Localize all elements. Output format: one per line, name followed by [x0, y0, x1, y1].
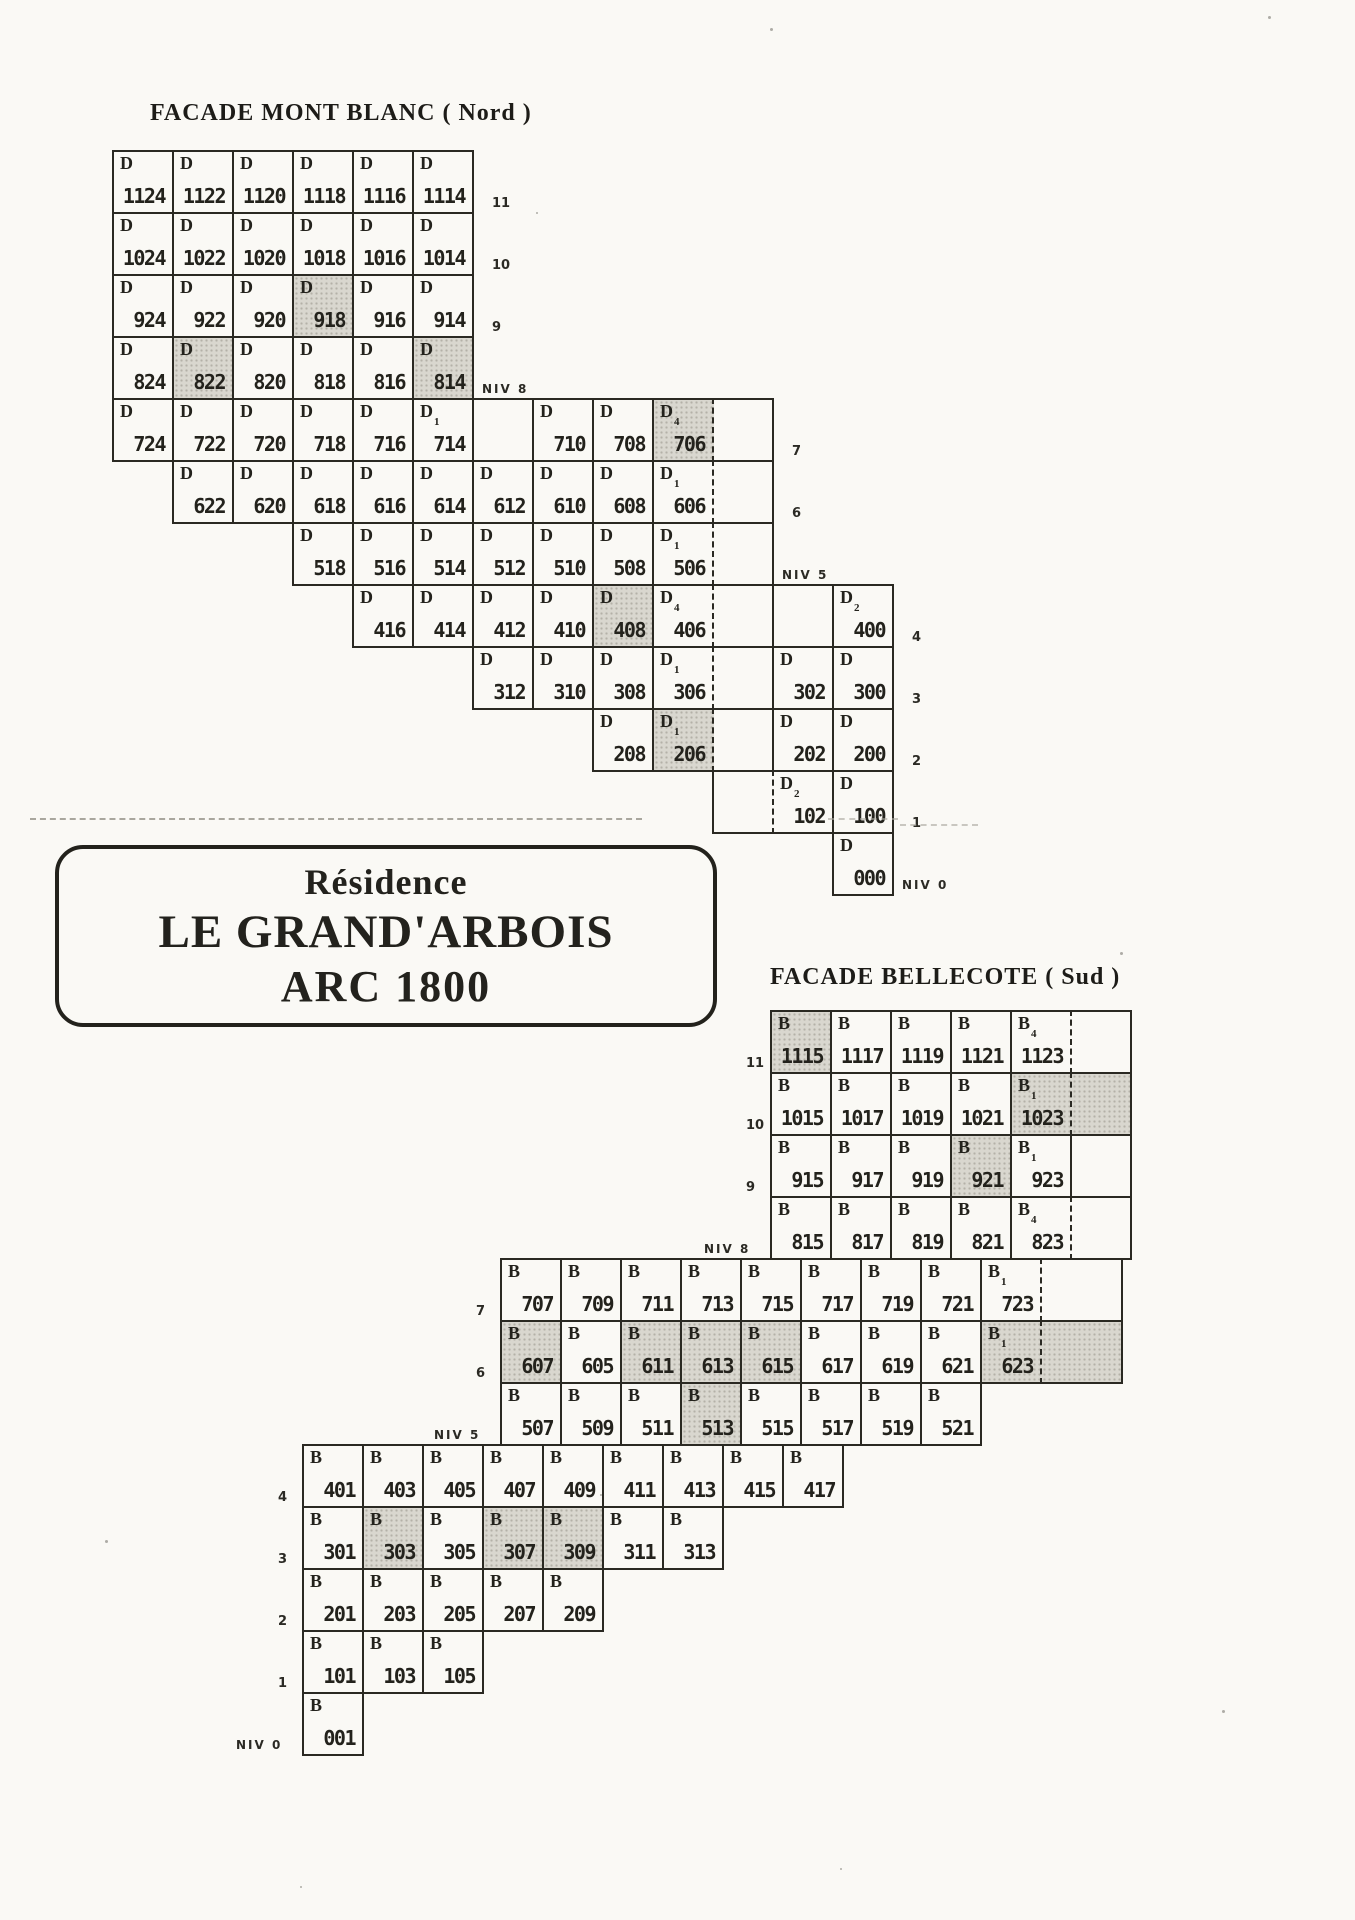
unit-cell-917: B917	[830, 1134, 892, 1198]
unit-letter: B	[778, 1199, 790, 1220]
unit-number: 1021	[961, 1106, 1003, 1130]
unit-number: 1015	[781, 1106, 823, 1130]
residence-resort: ARC 1800	[281, 961, 491, 1012]
unit-cell-413: B413	[662, 1444, 724, 1508]
level-marker-south-3: 3	[278, 1552, 287, 1567]
empty-cell	[1070, 1134, 1132, 1198]
unit-letter: B	[508, 1323, 520, 1344]
unit-number: 1121	[961, 1044, 1003, 1068]
unit-cell-1021: B1021	[950, 1072, 1012, 1136]
unit-letter: B1	[988, 1323, 1006, 1347]
unit-number: 715	[761, 1292, 793, 1316]
unit-cell-611: B611	[620, 1320, 682, 1384]
unit-cell-919: B919	[890, 1134, 952, 1198]
facade-title-south: FACADE BELLECOTE ( Sud )	[770, 964, 1120, 991]
unit-number: 101	[323, 1664, 355, 1688]
residence-name: Résidence	[305, 861, 468, 903]
scan-speck	[600, 1494, 602, 1496]
unit-cell-201: B201	[302, 1568, 364, 1632]
empty-cell	[1040, 1320, 1123, 1384]
unit-letter: B	[748, 1385, 760, 1406]
unit-number: 511	[641, 1416, 673, 1440]
unit-letter: B	[628, 1385, 640, 1406]
unit-number: 817	[851, 1230, 883, 1254]
unit-letter: B1	[1018, 1075, 1036, 1099]
scan-speck	[1268, 16, 1271, 19]
unit-cell-205: B205	[422, 1568, 484, 1632]
unit-number: 513	[701, 1416, 733, 1440]
level-marker-south-1: 1	[278, 1676, 287, 1691]
unit-letter: B	[628, 1261, 640, 1282]
unit-number: 209	[563, 1602, 595, 1626]
unit-letter: B	[790, 1447, 802, 1468]
scan-speck	[840, 1868, 842, 1870]
unit-letter: B	[808, 1323, 820, 1344]
unit-number: 509	[581, 1416, 613, 1440]
unit-number: 313	[683, 1540, 715, 1564]
unit-cell-707: B707	[500, 1258, 562, 1322]
unit-cell-1019: B1019	[890, 1072, 952, 1136]
scan-fold-line	[30, 818, 642, 820]
unit-cell-715: B715	[740, 1258, 802, 1322]
unit-number: 915	[791, 1168, 823, 1192]
unit-number: 619	[881, 1354, 913, 1378]
unit-letter: B	[898, 1013, 910, 1034]
unit-letter: B	[898, 1199, 910, 1220]
unit-letter: B	[808, 1385, 820, 1406]
unit-cell-621: B621	[920, 1320, 982, 1384]
unit-letter: B	[868, 1385, 880, 1406]
unit-cell-509: B509	[560, 1382, 622, 1446]
unit-number: 821	[971, 1230, 1003, 1254]
unit-number: 515	[761, 1416, 793, 1440]
unit-cell-507: B507	[500, 1382, 562, 1446]
unit-number: 719	[881, 1292, 913, 1316]
unit-cell-821: B821	[950, 1196, 1012, 1260]
unit-letter: B	[310, 1695, 322, 1716]
unit-cell-411: B411	[602, 1444, 664, 1508]
unit-cell-303: B303	[362, 1506, 424, 1570]
unit-letter: B	[778, 1075, 790, 1096]
unit-cell-313: B313	[662, 1506, 724, 1570]
unit-letter: B	[370, 1447, 382, 1468]
unit-cell-401: B401	[302, 1444, 364, 1508]
unit-number: 1017	[841, 1106, 883, 1130]
unit-letter: B	[688, 1385, 700, 1406]
level-marker-south-2: 2	[278, 1614, 287, 1629]
unit-number: 815	[791, 1230, 823, 1254]
unit-cell-405: B405	[422, 1444, 484, 1508]
unit-letter: B	[688, 1323, 700, 1344]
unit-cell-517: B517	[800, 1382, 862, 1446]
unit-number: 1023	[1021, 1106, 1063, 1130]
unit-number: 309	[563, 1540, 595, 1564]
unit-letter: B	[370, 1509, 382, 1530]
unit-letter: B	[430, 1509, 442, 1530]
unit-number: 305	[443, 1540, 475, 1564]
unit-letter: B	[610, 1509, 622, 1530]
unit-letter: B	[490, 1509, 502, 1530]
unit-number: 721	[941, 1292, 973, 1316]
unit-cell-823: B4823	[1010, 1196, 1072, 1260]
unit-number: 617	[821, 1354, 853, 1378]
unit-letter: B	[310, 1447, 322, 1468]
unit-cell-623: B1623	[980, 1320, 1042, 1384]
unit-number: 415	[743, 1478, 775, 1502]
unit-number: 403	[383, 1478, 415, 1502]
unit-number: 1019	[901, 1106, 943, 1130]
empty-cell	[1070, 1196, 1132, 1260]
unit-cell-815: B815	[770, 1196, 832, 1260]
unit-number: 917	[851, 1168, 883, 1192]
unit-number: 407	[503, 1478, 535, 1502]
unit-number: 201	[323, 1602, 355, 1626]
unit-letter: B	[928, 1323, 940, 1344]
level-marker-south-8: NIV 8	[704, 1242, 750, 1256]
unit-letter: B	[370, 1571, 382, 1592]
unit-cell-1115: B1115	[770, 1010, 832, 1074]
unit-number: 203	[383, 1602, 415, 1626]
level-marker-south-0: NIV 0	[236, 1738, 282, 1752]
unit-number: 517	[821, 1416, 853, 1440]
unit-cell-1023: B11023	[1010, 1072, 1072, 1136]
unit-number: 919	[911, 1168, 943, 1192]
unit-letter: B	[778, 1013, 790, 1034]
unit-cell-619: B619	[860, 1320, 922, 1384]
unit-cell-305: B305	[422, 1506, 484, 1570]
unit-letter: B	[550, 1509, 562, 1530]
unit-cell-1119: B1119	[890, 1010, 952, 1074]
level-marker-south-10: 10	[746, 1118, 764, 1133]
unit-cell-209: B209	[542, 1568, 604, 1632]
unit-number: 413	[683, 1478, 715, 1502]
unit-number: 711	[641, 1292, 673, 1316]
unit-number: 613	[701, 1354, 733, 1378]
unit-cell-307: B307	[482, 1506, 544, 1570]
empty-cell	[1070, 1072, 1132, 1136]
unit-letter: B	[508, 1261, 520, 1282]
unit-cell-605: B605	[560, 1320, 622, 1384]
unit-letter: B	[670, 1509, 682, 1530]
unit-letter: B4	[1018, 1199, 1036, 1223]
unit-letter: B	[670, 1447, 682, 1468]
unit-letter: B	[748, 1323, 760, 1344]
scan-speck	[536, 212, 538, 214]
unit-letter: B	[730, 1447, 742, 1468]
scan-speck	[300, 1886, 302, 1888]
unit-number: 311	[623, 1540, 655, 1564]
unit-cell-1015: B1015	[770, 1072, 832, 1136]
unit-cell-613: B613	[680, 1320, 742, 1384]
unit-cell-713: B713	[680, 1258, 742, 1322]
unit-letter: B	[838, 1199, 850, 1220]
unit-number: 207	[503, 1602, 535, 1626]
unit-cell-521: B521	[920, 1382, 982, 1446]
unit-letter: B	[868, 1261, 880, 1282]
unit-cell-719: B719	[860, 1258, 922, 1322]
unit-cell-723: B1723	[980, 1258, 1042, 1322]
unit-number: 819	[911, 1230, 943, 1254]
unit-letter: B	[310, 1633, 322, 1654]
unit-number: 921	[971, 1168, 1003, 1192]
unit-number: 303	[383, 1540, 415, 1564]
unit-number: 1117	[841, 1044, 883, 1068]
scan-fold-line	[900, 824, 978, 826]
unit-number: 605	[581, 1354, 613, 1378]
unit-cell-105: B105	[422, 1630, 484, 1694]
unit-letter: B1	[988, 1261, 1006, 1285]
unit-cell-607: B607	[500, 1320, 562, 1384]
unit-letter: B1	[1018, 1137, 1036, 1161]
unit-cell-415: B415	[722, 1444, 784, 1508]
scanned-facade-sheet: FACADE MONT BLANC ( Nord )D1124D1122D112…	[0, 0, 1355, 1920]
unit-letter: B	[370, 1633, 382, 1654]
unit-cell-001: B001	[302, 1692, 364, 1756]
unit-letter: B	[838, 1013, 850, 1034]
unit-letter: B	[958, 1013, 970, 1034]
unit-number: 521	[941, 1416, 973, 1440]
unit-cell-709: B709	[560, 1258, 622, 1322]
unit-cell-915: B915	[770, 1134, 832, 1198]
level-marker-south-7: 7	[476, 1304, 485, 1319]
unit-number: 519	[881, 1416, 913, 1440]
unit-cell-515: B515	[740, 1382, 802, 1446]
unit-letter: B	[928, 1261, 940, 1282]
scan-speck	[105, 1540, 108, 1543]
unit-cell-617: B617	[800, 1320, 862, 1384]
unit-cell-513: B513	[680, 1382, 742, 1446]
unit-number: 611	[641, 1354, 673, 1378]
unit-number: 621	[941, 1354, 973, 1378]
unit-letter: B	[958, 1199, 970, 1220]
unit-letter: B	[838, 1137, 850, 1158]
residence-banner: Résidence LE GRAND'ARBOIS ARC 1800	[55, 845, 717, 1027]
unit-number: 607	[521, 1354, 553, 1378]
unit-letter: B	[490, 1571, 502, 1592]
unit-letter: B	[430, 1447, 442, 1468]
scan-speck	[770, 28, 773, 31]
unit-number: 923	[1031, 1168, 1063, 1192]
unit-cell-309: B309	[542, 1506, 604, 1570]
unit-cell-711: B711	[620, 1258, 682, 1322]
residence-title: LE GRAND'ARBOIS	[158, 905, 613, 959]
unit-number: 409	[563, 1478, 595, 1502]
unit-number: 001	[323, 1726, 355, 1750]
unit-letter: B	[838, 1075, 850, 1096]
unit-letter: B	[310, 1571, 322, 1592]
empty-cell	[1040, 1258, 1123, 1322]
unit-cell-101: B101	[302, 1630, 364, 1694]
unit-number: 1123	[1021, 1044, 1063, 1068]
unit-number: 709	[581, 1292, 613, 1316]
unit-letter: B	[778, 1137, 790, 1158]
unit-letter: B	[550, 1571, 562, 1592]
unit-cell-511: B511	[620, 1382, 682, 1446]
unit-number: 507	[521, 1416, 553, 1440]
unit-cell-311: B311	[602, 1506, 664, 1570]
unit-number: 205	[443, 1602, 475, 1626]
unit-number: 717	[821, 1292, 853, 1316]
unit-letter: B	[568, 1261, 580, 1282]
unit-number: 301	[323, 1540, 355, 1564]
unit-cell-819: B819	[890, 1196, 952, 1260]
unit-cell-407: B407	[482, 1444, 544, 1508]
unit-cell-403: B403	[362, 1444, 424, 1508]
level-marker-south-11: 11	[746, 1056, 764, 1071]
unit-letter: B	[808, 1261, 820, 1282]
scan-speck	[1120, 952, 1123, 955]
unit-number: 707	[521, 1292, 553, 1316]
unit-cell-1123: B41123	[1010, 1010, 1072, 1074]
level-marker-south-6: 6	[476, 1366, 485, 1381]
unit-cell-1117: B1117	[830, 1010, 892, 1074]
level-marker-south-4: 4	[278, 1490, 287, 1505]
unit-letter: B	[928, 1385, 940, 1406]
unit-number: 1115	[781, 1044, 823, 1068]
unit-letter: B	[958, 1137, 970, 1158]
unit-letter: B	[568, 1323, 580, 1344]
unit-letter: B	[898, 1137, 910, 1158]
unit-number: 401	[323, 1478, 355, 1502]
unit-number: 103	[383, 1664, 415, 1688]
scan-speck	[1222, 1710, 1225, 1713]
unit-number: 623	[1001, 1354, 1033, 1378]
unit-letter: B	[430, 1571, 442, 1592]
unit-cell-923: B1923	[1010, 1134, 1072, 1198]
unit-number: 307	[503, 1540, 535, 1564]
unit-number: 1119	[901, 1044, 943, 1068]
unit-letter: B	[430, 1633, 442, 1654]
level-marker-south-9: 9	[746, 1180, 755, 1195]
unit-letter: B	[748, 1261, 760, 1282]
unit-cell-103: B103	[362, 1630, 424, 1694]
unit-cell-615: B615	[740, 1320, 802, 1384]
level-marker-south-5: NIV 5	[434, 1428, 480, 1442]
unit-letter: B	[688, 1261, 700, 1282]
unit-letter: B	[868, 1323, 880, 1344]
unit-letter: B	[508, 1385, 520, 1406]
scan-fold-line	[828, 818, 898, 820]
unit-letter: B	[958, 1075, 970, 1096]
unit-letter: B	[550, 1447, 562, 1468]
empty-cell	[1070, 1010, 1132, 1074]
unit-cell-409: B409	[542, 1444, 604, 1508]
unit-cell-301: B301	[302, 1506, 364, 1570]
unit-number: 823	[1031, 1230, 1063, 1254]
unit-cell-203: B203	[362, 1568, 424, 1632]
unit-cell-417: B417	[782, 1444, 844, 1508]
unit-number: 405	[443, 1478, 475, 1502]
unit-cell-519: B519	[860, 1382, 922, 1446]
unit-number: 713	[701, 1292, 733, 1316]
unit-cell-717: B717	[800, 1258, 862, 1322]
unit-letter: B	[490, 1447, 502, 1468]
unit-cell-817: B817	[830, 1196, 892, 1260]
unit-number: 411	[623, 1478, 655, 1502]
unit-number: 105	[443, 1664, 475, 1688]
unit-letter: B	[610, 1447, 622, 1468]
unit-cell-921: B921	[950, 1134, 1012, 1198]
unit-number: 417	[803, 1478, 835, 1502]
unit-letter: B	[310, 1509, 322, 1530]
unit-number: 615	[761, 1354, 793, 1378]
unit-cell-1121: B1121	[950, 1010, 1012, 1074]
unit-letter: B	[568, 1385, 580, 1406]
unit-cell-721: B721	[920, 1258, 982, 1322]
unit-cell-207: B207	[482, 1568, 544, 1632]
unit-number: 723	[1001, 1292, 1033, 1316]
unit-letter: B4	[1018, 1013, 1036, 1037]
unit-letter: B	[628, 1323, 640, 1344]
unit-cell-1017: B1017	[830, 1072, 892, 1136]
unit-letter: B	[898, 1075, 910, 1096]
